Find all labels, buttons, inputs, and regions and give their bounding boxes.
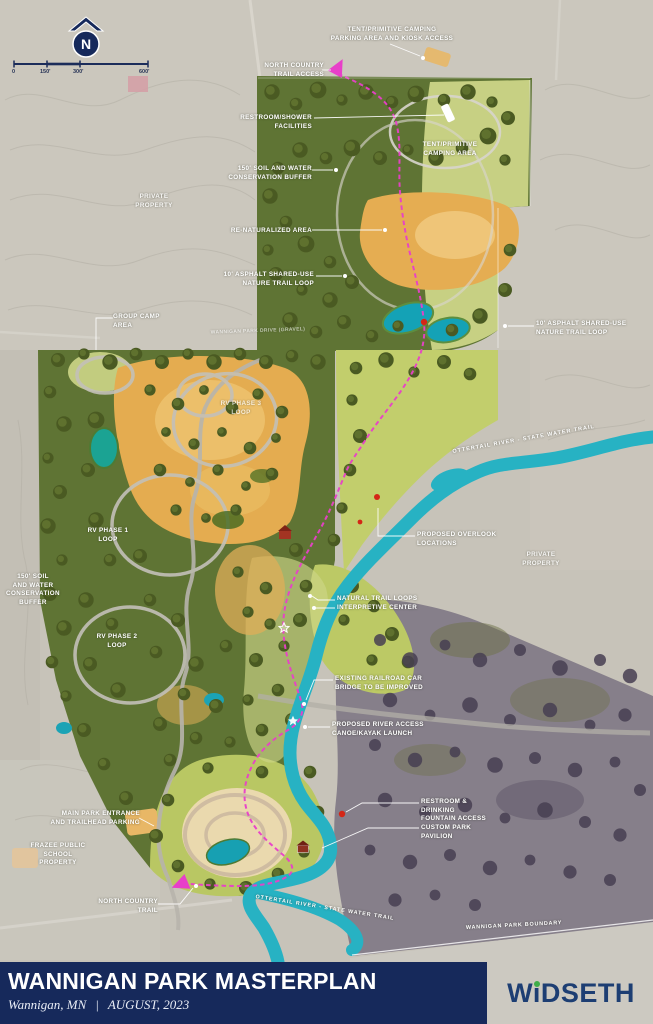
label-tent-camping-parking: TENT/PRIMITIVE CAMPING PARKING AREA AND … bbox=[312, 26, 472, 43]
existing-building bbox=[128, 76, 148, 92]
widseth-logo: WiDSETH bbox=[489, 962, 653, 1024]
title-bar: WANNIGAN PARK MASTERPLAN Wannigan, MN | … bbox=[0, 962, 487, 1024]
scale-tick: 0 bbox=[12, 69, 15, 75]
page-title: WANNIGAN PARK MASTERPLAN bbox=[8, 969, 487, 993]
north-arrow-icon: N bbox=[64, 14, 108, 62]
label-conservation-buffer-north: 150' SOIL AND WATER CONSERVATION BUFFER bbox=[228, 165, 312, 182]
label-north-country-trail-south: NORTH COUNTRY TRAIL bbox=[96, 898, 158, 915]
svg-text:N: N bbox=[81, 36, 91, 52]
separator: | bbox=[95, 997, 99, 1013]
label-private-property-east: PRIVATE PROPERTY bbox=[510, 551, 572, 568]
widseth-wordmark: WiDSETH bbox=[507, 978, 635, 1009]
label-rv-phase-3: RV PHASE 3 LOOP bbox=[206, 400, 276, 417]
restroom-marker-icon bbox=[339, 811, 345, 817]
scale-tick: 300' bbox=[73, 69, 83, 75]
label-north-country-trail-access: NORTH COUNTRY TRAIL ACCESS bbox=[240, 62, 324, 79]
label-proposed-overlook: PROPOSED OVERLOOK LOCATIONS bbox=[417, 531, 507, 548]
label-rv-phase-1: RV PHASE 1 LOOP bbox=[78, 527, 138, 544]
label-group-camp-area: GROUP CAMP AREA bbox=[113, 313, 173, 330]
label-renaturalized-area: RE-NATURALIZED AREA bbox=[228, 227, 312, 236]
label-nature-trail-loop-west: 10' ASPHALT SHARED-USE NATURE TRAIL LOOP bbox=[222, 271, 314, 288]
label-main-entrance: MAIN PARK ENTRANCE AND TRAILHEAD PARKING bbox=[28, 810, 140, 827]
label-canoe-launch: PROPOSED RIVER ACCESS CANOE/KAYAK LAUNCH bbox=[332, 721, 424, 738]
label-tent-camping-area: TENT/PRIMITIVE CAMPING AREA bbox=[414, 141, 486, 158]
masterplan-page: N 0 150' 300' 600' TENT/PRIMITIVE CAMPIN… bbox=[0, 0, 653, 1024]
location-text: Wannigan, MN bbox=[8, 997, 86, 1013]
label-school-property: FRAZEE PUBLIC SCHOOL PROPERTY bbox=[24, 842, 92, 868]
map-artwork bbox=[0, 0, 653, 1024]
scale-tick: 600' bbox=[139, 69, 149, 75]
label-custom-pavilion: CUSTOM PARK PAVILION bbox=[421, 824, 491, 841]
label-private-property-nw: PRIVATE PROPERTY bbox=[116, 193, 192, 210]
overlook-marker-icon bbox=[358, 520, 363, 525]
trail-marker-red-icon bbox=[421, 319, 427, 325]
date-text: AUGUST, 2023 bbox=[108, 997, 189, 1013]
label-rv-phase-2: RV PHASE 2 LOOP bbox=[86, 633, 148, 650]
label-conservation-buffer-west: 150' SOIL AND WATER CONSERVATION BUFFER bbox=[4, 573, 62, 607]
scale-tick: 150' bbox=[40, 69, 50, 75]
label-natural-trail-interpretive: NATURAL TRAIL LOOPS INTERPRETIVE CENTER bbox=[337, 595, 427, 612]
logo-green-dot-icon bbox=[534, 981, 540, 987]
label-restroom-fountain: RESTROOM & DRINKING FOUNTAIN ACCESS bbox=[421, 798, 501, 824]
overlook-marker-icon bbox=[374, 494, 380, 500]
label-railroad-bridge: EXISTING RAILROAD CAR BRIDGE TO BE IMPRO… bbox=[335, 675, 427, 692]
label-restroom-shower: RESTROOM/SHOWER FACILITIES bbox=[228, 114, 312, 131]
label-nature-trail-loop-east: 10' ASPHALT SHARED-USE NATURE TRAIL LOOP bbox=[536, 320, 628, 337]
title-subtext: Wannigan, MN | AUGUST, 2023 bbox=[8, 997, 487, 1013]
